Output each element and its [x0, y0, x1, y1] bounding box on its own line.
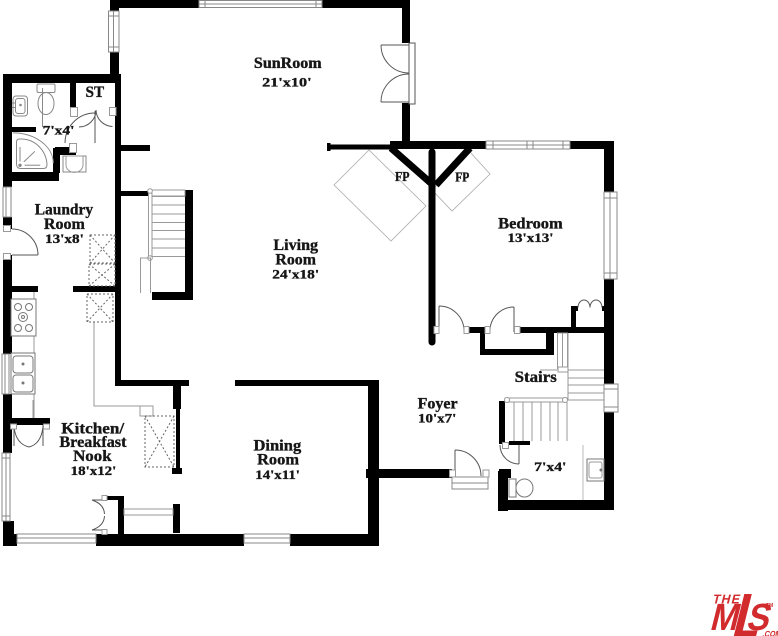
svg-text:ST: ST: [86, 84, 105, 101]
svg-text:7'x4': 7'x4': [534, 460, 566, 474]
svg-text:SunRoom: SunRoom: [254, 55, 322, 72]
svg-text:Nook: Nook: [73, 448, 112, 465]
svg-text:21'x10': 21'x10': [262, 76, 312, 90]
svg-text:7'x4': 7'x4': [43, 124, 75, 138]
svg-text:.COM: .COM: [761, 629, 778, 636]
svg-text:18'x12': 18'x12': [71, 464, 117, 478]
svg-text:Room: Room: [257, 452, 299, 469]
svg-text:10'x7': 10'x7': [418, 412, 456, 426]
svg-text:TM: TM: [766, 603, 773, 609]
svg-text:13'x13': 13'x13': [508, 231, 554, 245]
svg-text:FP: FP: [455, 170, 469, 185]
svg-text:Room: Room: [44, 216, 85, 233]
svg-text:13'x8': 13'x8': [45, 232, 84, 246]
svg-text:Bedroom: Bedroom: [498, 215, 563, 232]
svg-text:24'x18': 24'x18': [272, 267, 319, 281]
svg-text:FP: FP: [395, 169, 410, 184]
svg-text:Stairs: Stairs: [515, 369, 557, 386]
svg-text:Foyer: Foyer: [418, 396, 458, 413]
svg-text:14'x11': 14'x11': [255, 468, 300, 482]
svg-text:Room: Room: [275, 251, 316, 268]
